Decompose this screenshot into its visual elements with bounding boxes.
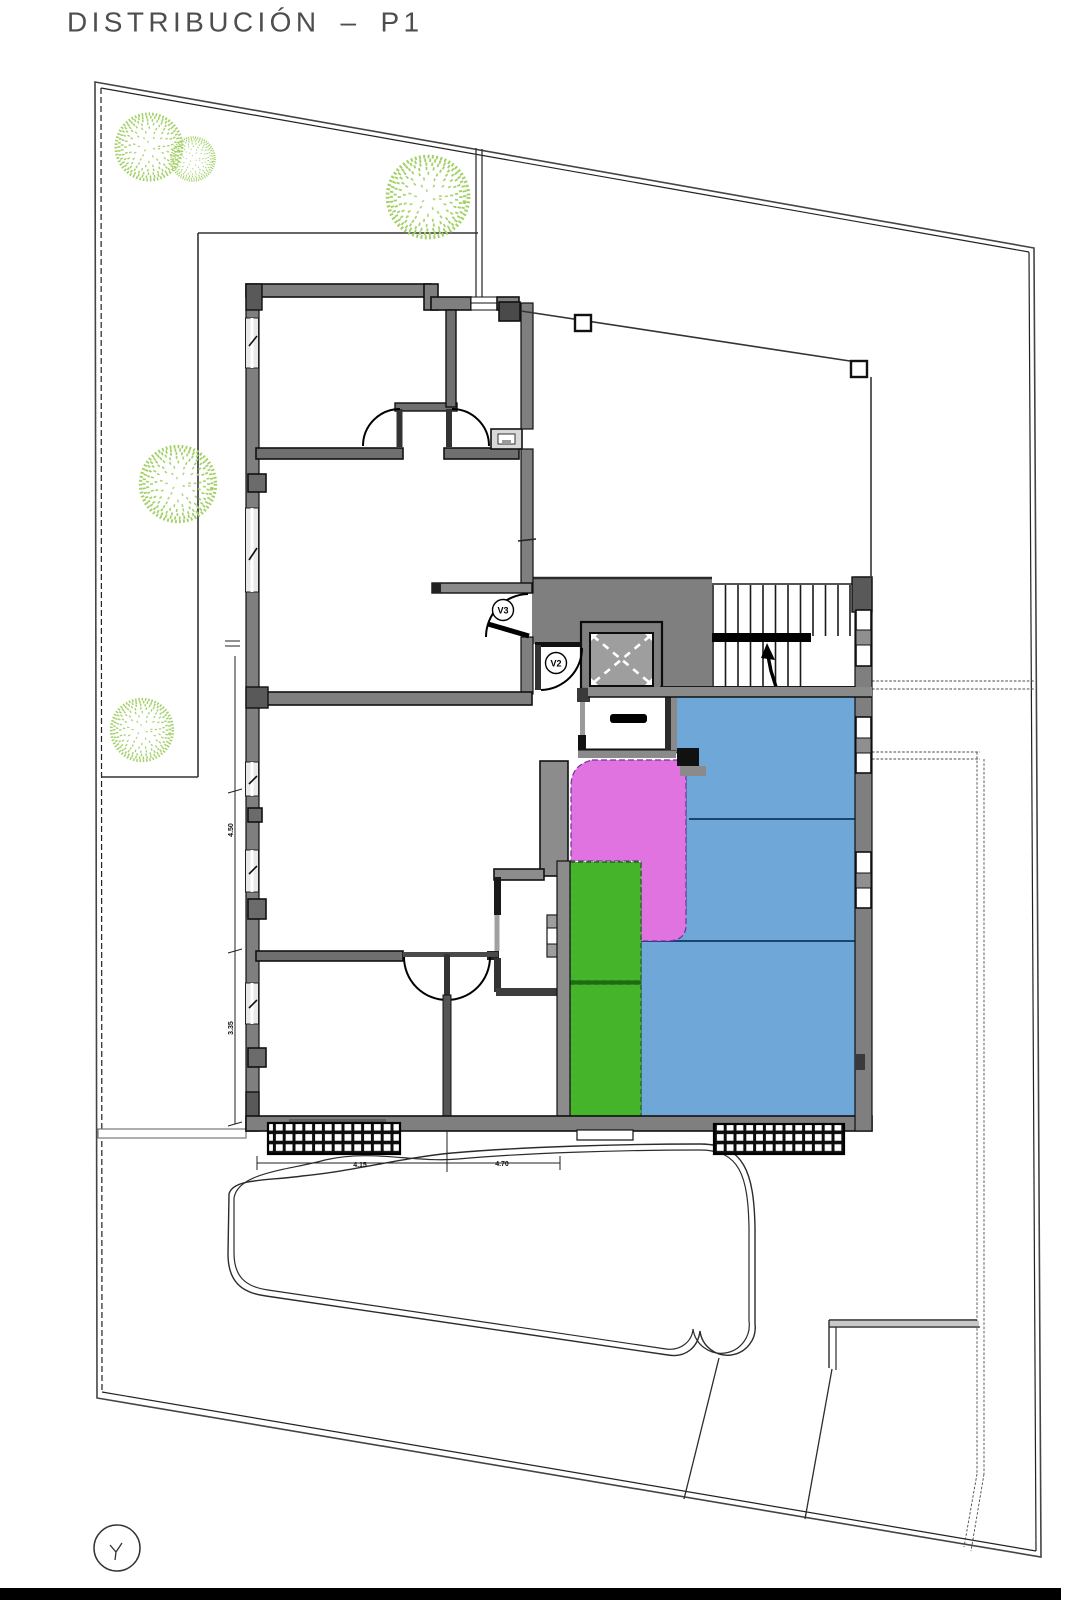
svg-text:DISTRIBUCIÓN – P1: DISTRIBUCIÓN – P1 — [67, 7, 424, 38]
svg-text:4.70: 4.70 — [495, 1161, 509, 1168]
svg-text:V2: V2 — [550, 659, 561, 669]
svg-text:3.35: 3.35 — [228, 1021, 235, 1035]
svg-text:4.50: 4.50 — [228, 823, 235, 837]
svg-text:V3: V3 — [497, 606, 508, 616]
svg-text:4.15: 4.15 — [353, 1162, 367, 1169]
